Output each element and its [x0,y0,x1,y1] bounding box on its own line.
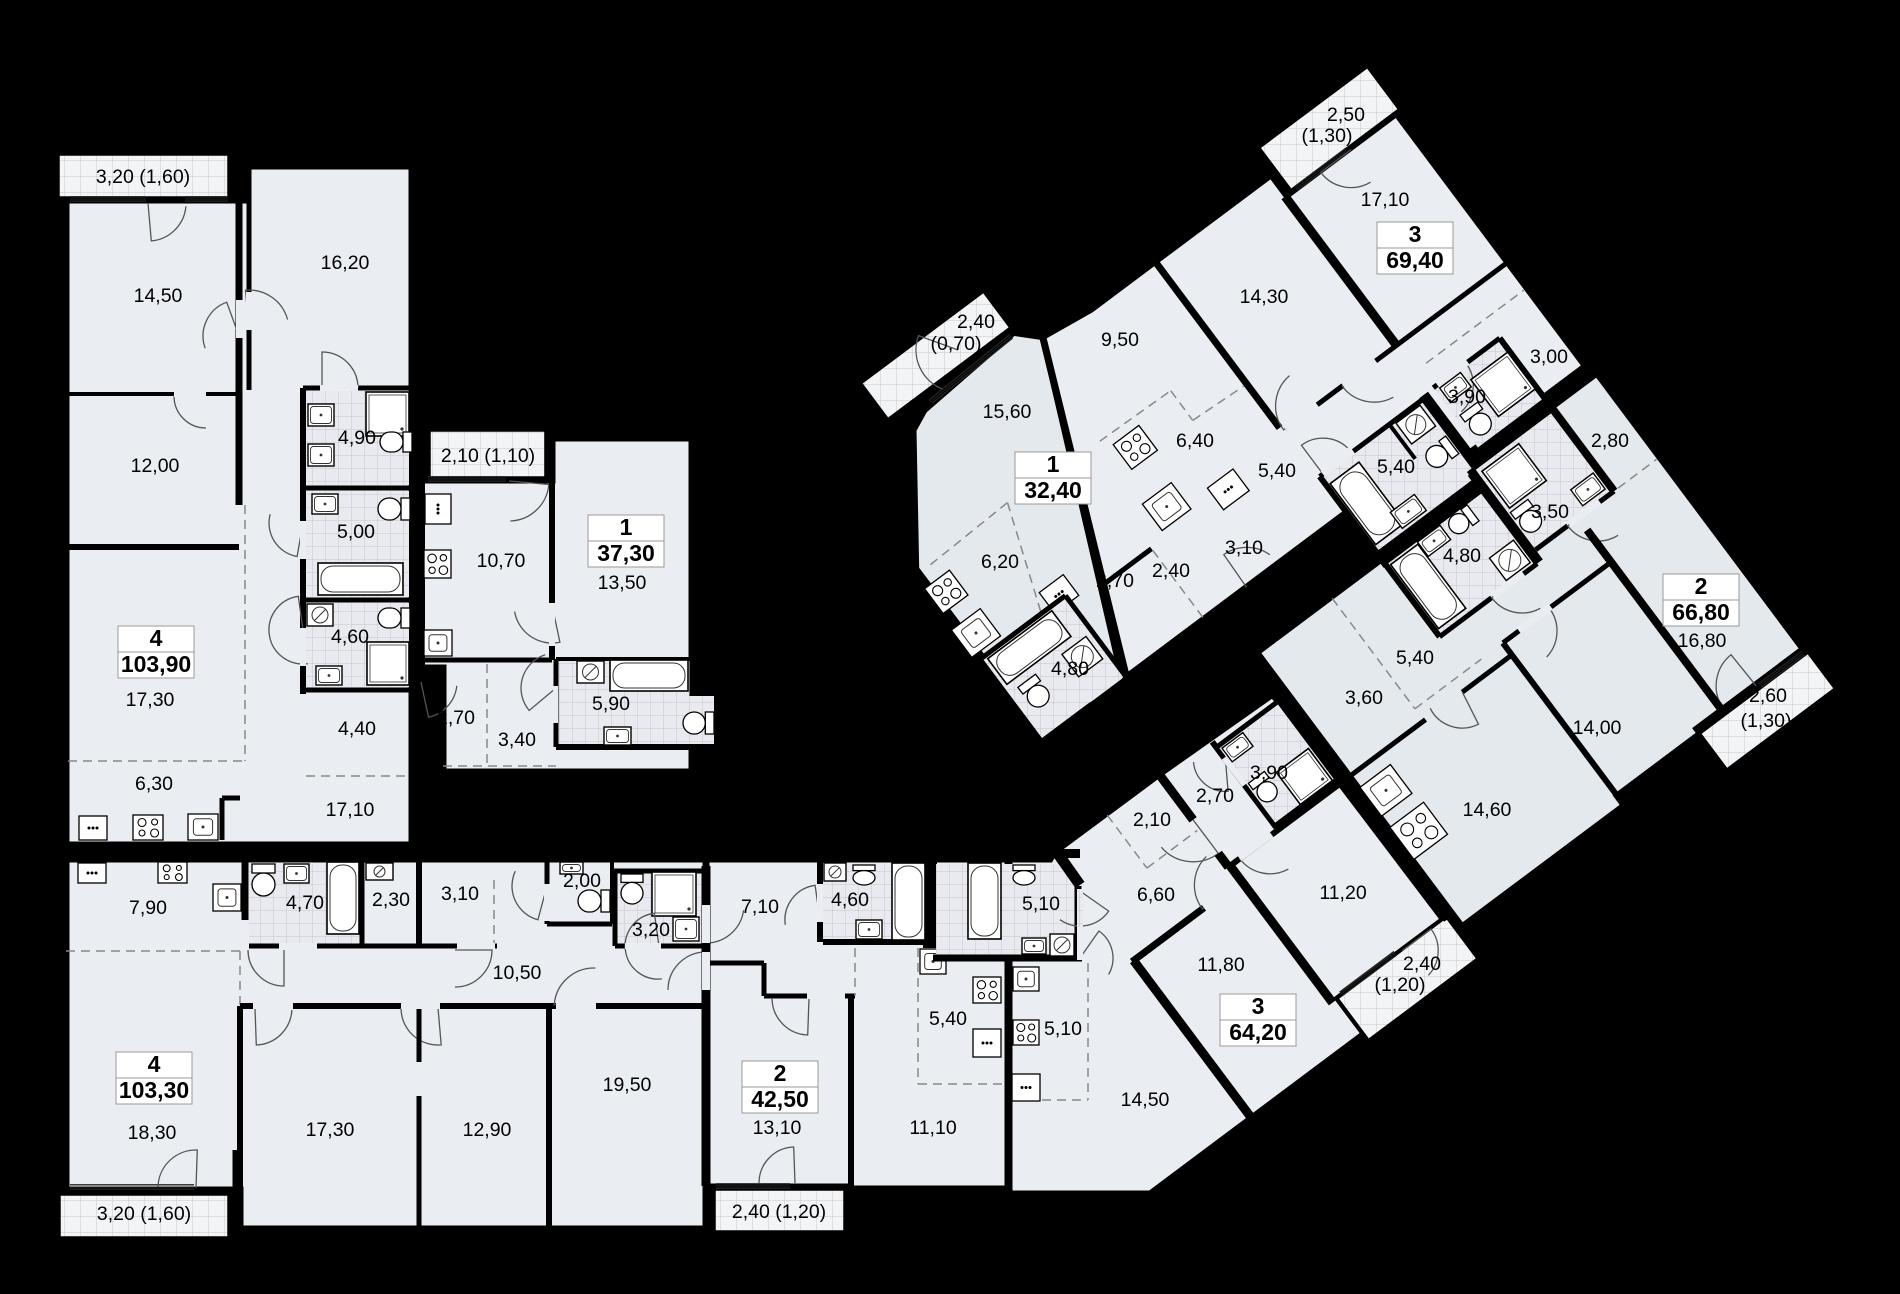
svg-text:6,30: 6,30 [135,773,173,795]
svg-text:10,70: 10,70 [477,550,526,572]
svg-text:3,20 (1,60): 3,20 (1,60) [97,1203,191,1225]
svg-text:4: 4 [148,1051,161,1077]
svg-text:14,30: 14,30 [1240,286,1289,308]
svg-text:17,10: 17,10 [326,799,375,821]
svg-text:6,60: 6,60 [1137,884,1175,906]
svg-text:16,20: 16,20 [321,252,370,274]
svg-text:64,20: 64,20 [1229,1019,1287,1045]
svg-text:3,40: 3,40 [498,729,536,751]
svg-text:4,80: 4,80 [1443,545,1481,567]
svg-text:17,30: 17,30 [306,1119,355,1141]
svg-text:10,50: 10,50 [493,962,542,984]
svg-text:4,60: 4,60 [831,889,869,911]
svg-text:2: 2 [774,1060,787,1086]
svg-text:103,30: 103,30 [119,1077,189,1103]
svg-text:2,10: 2,10 [1133,809,1171,831]
svg-text:19,50: 19,50 [603,1074,652,1096]
svg-text:2: 2 [1695,573,1708,599]
svg-text:7,90: 7,90 [129,897,167,919]
svg-text:2,40: 2,40 [957,311,995,333]
svg-text:5,40: 5,40 [1258,460,1296,482]
svg-text:18,30: 18,30 [128,1122,177,1144]
svg-text:7,10: 7,10 [741,896,779,918]
svg-text:14,60: 14,60 [1463,799,1512,821]
svg-text:12,90: 12,90 [463,1119,512,1141]
svg-text:13,50: 13,50 [598,572,647,594]
svg-text:3,90: 3,90 [1250,762,1288,784]
svg-text:(1,30): (1,30) [1302,125,1353,147]
svg-text:3,10: 3,10 [1225,537,1263,559]
svg-text:(1,20): (1,20) [1375,974,1426,996]
svg-text:103,90: 103,90 [121,651,191,677]
svg-text:11,20: 11,20 [1319,882,1367,904]
svg-text:14,50: 14,50 [1121,1089,1170,1111]
svg-text:16,80: 16,80 [1678,630,1727,652]
svg-text:11,80: 11,80 [1197,954,1245,976]
svg-text:2,10 (1,10): 2,10 (1,10) [441,445,535,467]
svg-text:(1,30): (1,30) [1741,710,1792,732]
svg-text:66,80: 66,80 [1672,599,1730,625]
svg-text:5,40: 5,40 [929,1008,967,1030]
svg-text:12,00: 12,00 [131,455,180,477]
svg-text:2,00: 2,00 [563,870,601,892]
svg-text:2,30: 2,30 [372,889,410,911]
svg-text:5,10: 5,10 [1044,1018,1082,1040]
svg-text:14,00: 14,00 [1573,717,1622,739]
svg-text:42,50: 42,50 [751,1086,809,1112]
svg-text:6,20: 6,20 [981,551,1019,573]
svg-text:2,70: 2,70 [1096,570,1134,592]
svg-text:2,70: 2,70 [1196,785,1234,807]
svg-text:4,40: 4,40 [338,718,376,740]
svg-text:3,20: 3,20 [632,919,670,941]
svg-text:3: 3 [1252,993,1265,1019]
svg-text:(0,70): (0,70) [931,333,982,355]
svg-text:2,40 (1,20): 2,40 (1,20) [732,1201,826,1223]
svg-text:3: 3 [1409,221,1422,247]
svg-text:13,10: 13,10 [753,1117,802,1139]
svg-text:5,00: 5,00 [337,521,375,543]
svg-text:2,50: 2,50 [1327,104,1365,126]
svg-text:17,30: 17,30 [126,689,175,711]
svg-text:1: 1 [620,514,633,540]
svg-text:11,10: 11,10 [909,1117,957,1139]
svg-text:17,10: 17,10 [1361,189,1410,211]
svg-text:5,10: 5,10 [1022,893,1060,915]
svg-text:3,60: 3,60 [1345,687,1383,709]
svg-text:1: 1 [1047,451,1060,477]
svg-text:5,90: 5,90 [592,693,630,715]
svg-text:4,70: 4,70 [286,892,324,914]
svg-text:2,70: 2,70 [437,707,475,729]
svg-text:9,50: 9,50 [1101,329,1139,351]
svg-text:37,30: 37,30 [597,540,655,566]
svg-text:2,40: 2,40 [1152,560,1190,582]
svg-text:14,50: 14,50 [134,285,183,307]
svg-text:2,60: 2,60 [1749,685,1787,707]
svg-text:3,00: 3,00 [1530,346,1568,368]
svg-text:32,40: 32,40 [1024,477,1082,503]
svg-text:4,60: 4,60 [331,626,369,648]
svg-text:15,60: 15,60 [983,401,1032,423]
svg-text:4: 4 [150,625,163,651]
svg-text:5,40: 5,40 [1396,647,1434,669]
svg-text:2,80: 2,80 [1591,430,1629,452]
svg-text:3,20 (1,60): 3,20 (1,60) [96,166,190,188]
svg-text:4,90: 4,90 [338,427,376,449]
svg-text:3,90: 3,90 [1448,386,1486,408]
svg-text:6,40: 6,40 [1176,430,1214,452]
svg-text:2,40: 2,40 [1403,953,1441,975]
svg-text:3,10: 3,10 [441,883,479,905]
svg-text:4,80: 4,80 [1051,658,1089,680]
svg-text:69,40: 69,40 [1386,247,1444,273]
svg-text:3,50: 3,50 [1531,501,1569,523]
svg-text:5,40: 5,40 [1377,456,1415,478]
